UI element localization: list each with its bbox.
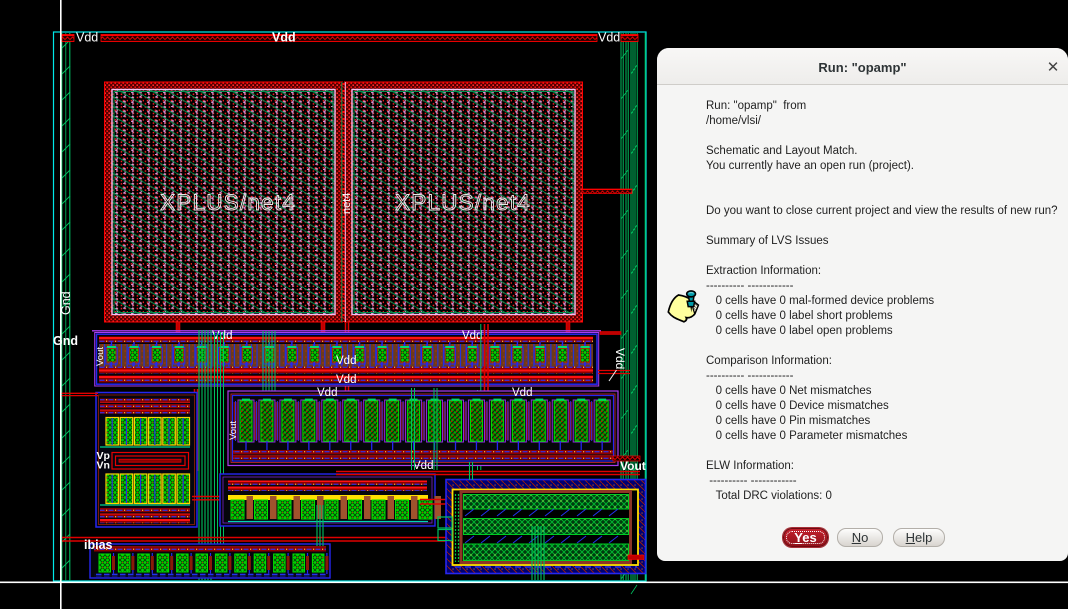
svg-text:net4: net4 — [341, 193, 353, 214]
svg-text:Vout: Vout — [620, 459, 646, 473]
svg-text:Vdd: Vdd — [336, 374, 356, 386]
svg-text:Vdd: Vdd — [598, 31, 620, 45]
svg-text:Vdd: Vdd — [76, 31, 98, 45]
svg-text:Vdd: Vdd — [212, 330, 232, 342]
svg-text:Vdd: Vdd — [317, 387, 337, 399]
svg-text:Vdd: Vdd — [613, 348, 627, 369]
svg-text:XPLUS/net4: XPLUS/net4 — [395, 190, 531, 215]
svg-text:Vdd: Vdd — [336, 355, 356, 367]
svg-text:Vout: Vout — [95, 347, 106, 366]
svg-text:Vn: Vn — [97, 460, 110, 472]
svg-text:Gnd: Gnd — [53, 334, 78, 348]
svg-text:Vdd: Vdd — [512, 387, 532, 399]
svg-text:XPLUS/net4: XPLUS/net4 — [160, 190, 296, 215]
svg-text:Vdd: Vdd — [413, 460, 433, 472]
svg-text:Vdd: Vdd — [272, 31, 296, 45]
svg-text:ibias: ibias — [84, 538, 113, 552]
svg-text:Vout: Vout — [228, 421, 239, 440]
svg-text:Vdd: Vdd — [462, 330, 482, 342]
